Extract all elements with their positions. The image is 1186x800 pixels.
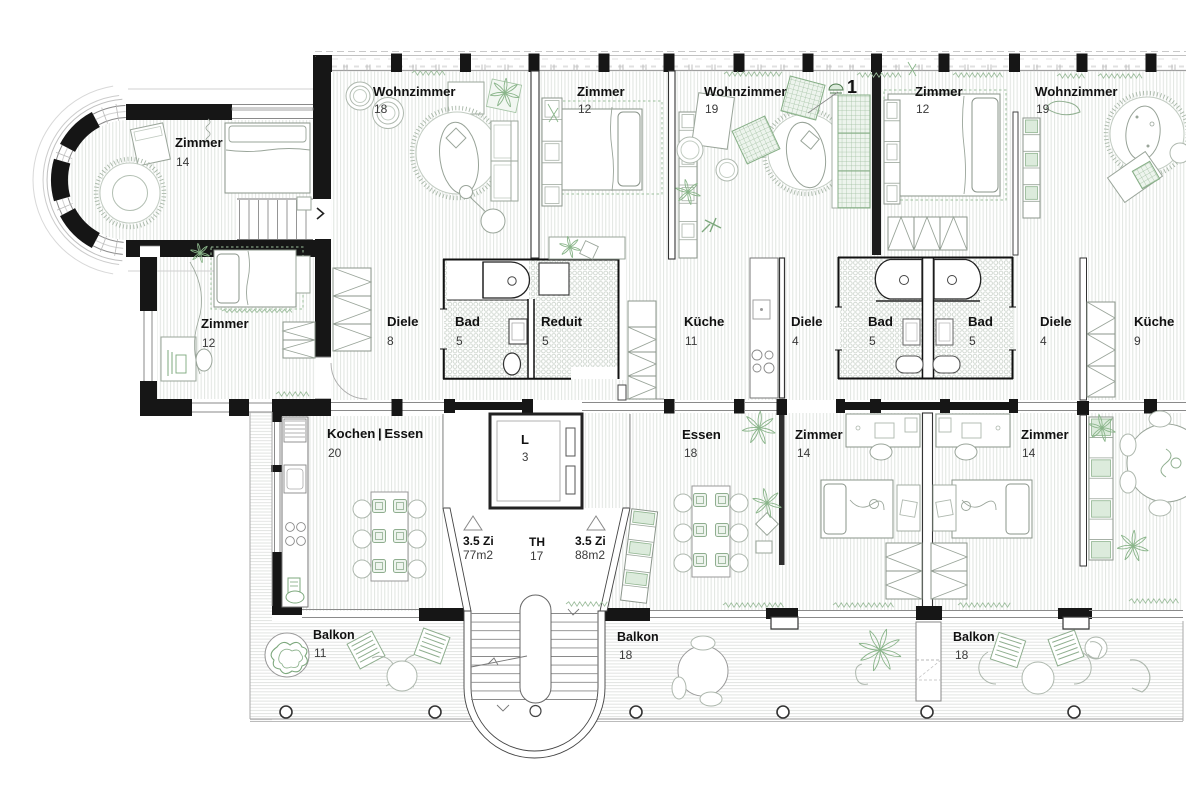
svg-text:Wohnzimmer: Wohnzimmer bbox=[704, 84, 787, 99]
svg-text:4: 4 bbox=[1040, 334, 1047, 348]
svg-text:Diele: Diele bbox=[791, 314, 823, 329]
svg-text:Diele: Diele bbox=[1040, 314, 1072, 329]
svg-text:19: 19 bbox=[1036, 102, 1050, 116]
svg-text:Wohnzimmer: Wohnzimmer bbox=[1035, 84, 1118, 99]
svg-text:5: 5 bbox=[542, 334, 549, 348]
svg-text:Zimmer: Zimmer bbox=[577, 84, 625, 99]
svg-text:3.5 Zi: 3.5 Zi bbox=[575, 534, 606, 548]
svg-text:18: 18 bbox=[374, 102, 388, 116]
svg-text:18: 18 bbox=[684, 446, 698, 460]
svg-text:Diele: Diele bbox=[387, 314, 419, 329]
svg-text:TH: TH bbox=[529, 535, 545, 549]
svg-text:Balkon: Balkon bbox=[313, 628, 355, 642]
svg-text:3.5 Zi: 3.5 Zi bbox=[463, 534, 494, 548]
svg-text:5: 5 bbox=[869, 334, 876, 348]
svg-text:Essen: Essen bbox=[682, 427, 721, 442]
svg-text:9: 9 bbox=[1134, 334, 1141, 348]
svg-text:Zimmer: Zimmer bbox=[795, 427, 843, 442]
svg-text:Balkon: Balkon bbox=[953, 630, 995, 644]
svg-text:Bad: Bad bbox=[455, 314, 480, 329]
svg-text:88m2: 88m2 bbox=[575, 548, 605, 562]
svg-text:Balkon: Balkon bbox=[617, 630, 659, 644]
svg-text:Kochen | Essen: Kochen | Essen bbox=[327, 426, 423, 441]
svg-text:17: 17 bbox=[530, 549, 544, 563]
svg-text:77m2: 77m2 bbox=[463, 548, 493, 562]
svg-text:12: 12 bbox=[202, 336, 216, 350]
svg-text:Küche: Küche bbox=[1134, 314, 1174, 329]
svg-text:Wohnzimmer: Wohnzimmer bbox=[373, 84, 456, 99]
svg-text:12: 12 bbox=[578, 102, 592, 116]
svg-text:8: 8 bbox=[387, 334, 394, 348]
svg-text:11: 11 bbox=[685, 334, 698, 348]
svg-text:Bad: Bad bbox=[868, 314, 893, 329]
svg-text:4: 4 bbox=[792, 334, 799, 348]
svg-text:14: 14 bbox=[176, 155, 190, 169]
svg-text:Küche: Küche bbox=[684, 314, 724, 329]
svg-text:14: 14 bbox=[797, 446, 811, 460]
svg-text:20: 20 bbox=[328, 446, 342, 460]
svg-text:18: 18 bbox=[619, 648, 633, 662]
svg-text:Zimmer: Zimmer bbox=[201, 316, 249, 331]
svg-text:Reduit: Reduit bbox=[541, 314, 583, 329]
svg-text:3: 3 bbox=[522, 452, 528, 464]
svg-text:12: 12 bbox=[916, 102, 930, 116]
svg-text:19: 19 bbox=[705, 102, 719, 116]
svg-text:11: 11 bbox=[314, 646, 327, 660]
svg-text:L: L bbox=[521, 432, 529, 447]
svg-text:1: 1 bbox=[847, 77, 857, 97]
svg-text:18: 18 bbox=[955, 648, 969, 662]
svg-text:Zimmer: Zimmer bbox=[175, 135, 223, 150]
svg-text:Zimmer: Zimmer bbox=[1021, 427, 1069, 442]
svg-text:5: 5 bbox=[456, 334, 463, 348]
svg-text:5: 5 bbox=[969, 334, 976, 348]
svg-text:Bad: Bad bbox=[968, 314, 993, 329]
svg-text:Zimmer: Zimmer bbox=[915, 84, 963, 99]
svg-text:14: 14 bbox=[1022, 446, 1036, 460]
